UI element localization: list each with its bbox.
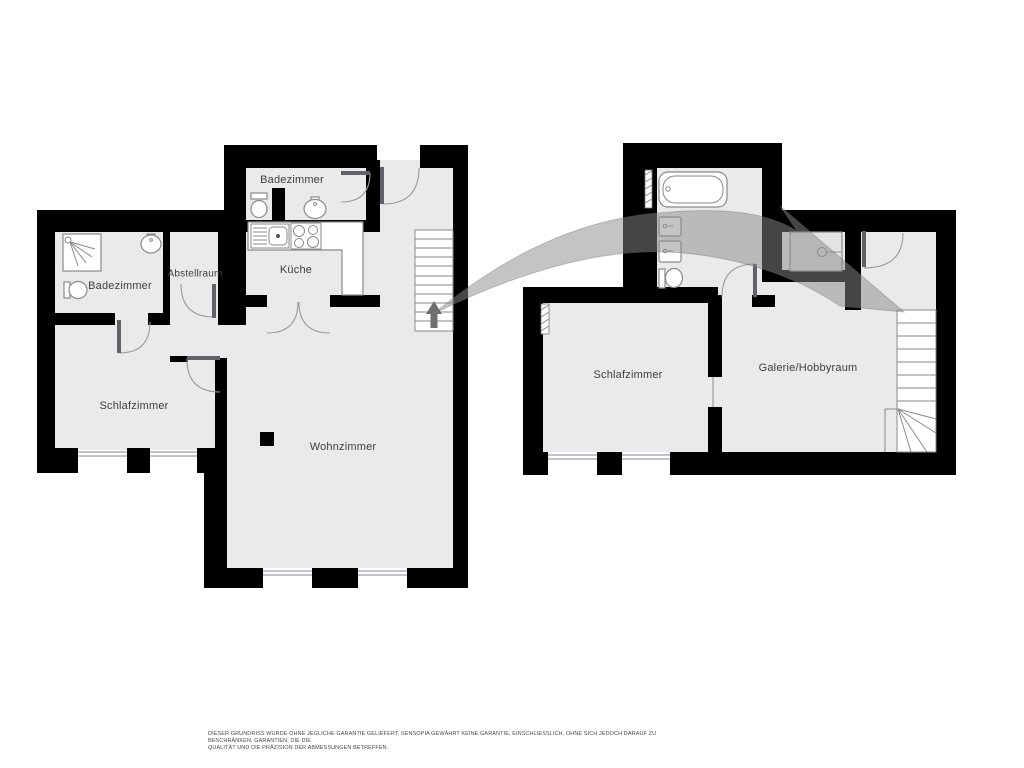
disclaimer-text: DIESER GRUNDRISS WURDE OHNE JEGLICHE GAR…	[208, 731, 678, 752]
shower-icon	[63, 234, 101, 271]
hatched-window	[541, 304, 549, 334]
floor-plan-page: Badezimmer Badezimmer Abstellraum Küche …	[0, 0, 1024, 768]
ground-floor-plan	[37, 145, 468, 588]
toilet-icon	[64, 282, 87, 299]
disclaimer-line-1: DIESER GRUNDRISS WURDE OHNE JEGLICHE GAR…	[208, 731, 678, 745]
disclaimer-line-2: QUALITÄT UND DIE PRÄZISION DER ABMESSUNG…	[208, 745, 678, 752]
toilet-icon	[659, 269, 683, 289]
sink-icon	[141, 234, 161, 253]
bathtub-icon	[659, 172, 727, 207]
hatched-window	[645, 170, 652, 208]
room-label-abstellraum: Abstellraum	[168, 269, 223, 280]
room-label-schlafzimmer-ground: Schlafzimmer	[99, 400, 168, 412]
room-label-badezimmer-left: Badezimmer	[88, 280, 152, 292]
ground-floor-staircase	[415, 230, 453, 331]
room-label-wohnzimmer: Wohnzimmer	[310, 441, 377, 453]
room-label-kueche: Küche	[280, 264, 312, 276]
room-label-badezimmer-top: Badezimmer	[260, 174, 324, 186]
room-label-galerie: Galerie/Hobbyraum	[759, 362, 858, 374]
column	[260, 432, 274, 446]
room-label-schlafzimmer-upper: Schlafzimmer	[593, 369, 662, 381]
toilet-icon	[251, 193, 267, 218]
floor-plan-drawing	[0, 0, 1024, 768]
